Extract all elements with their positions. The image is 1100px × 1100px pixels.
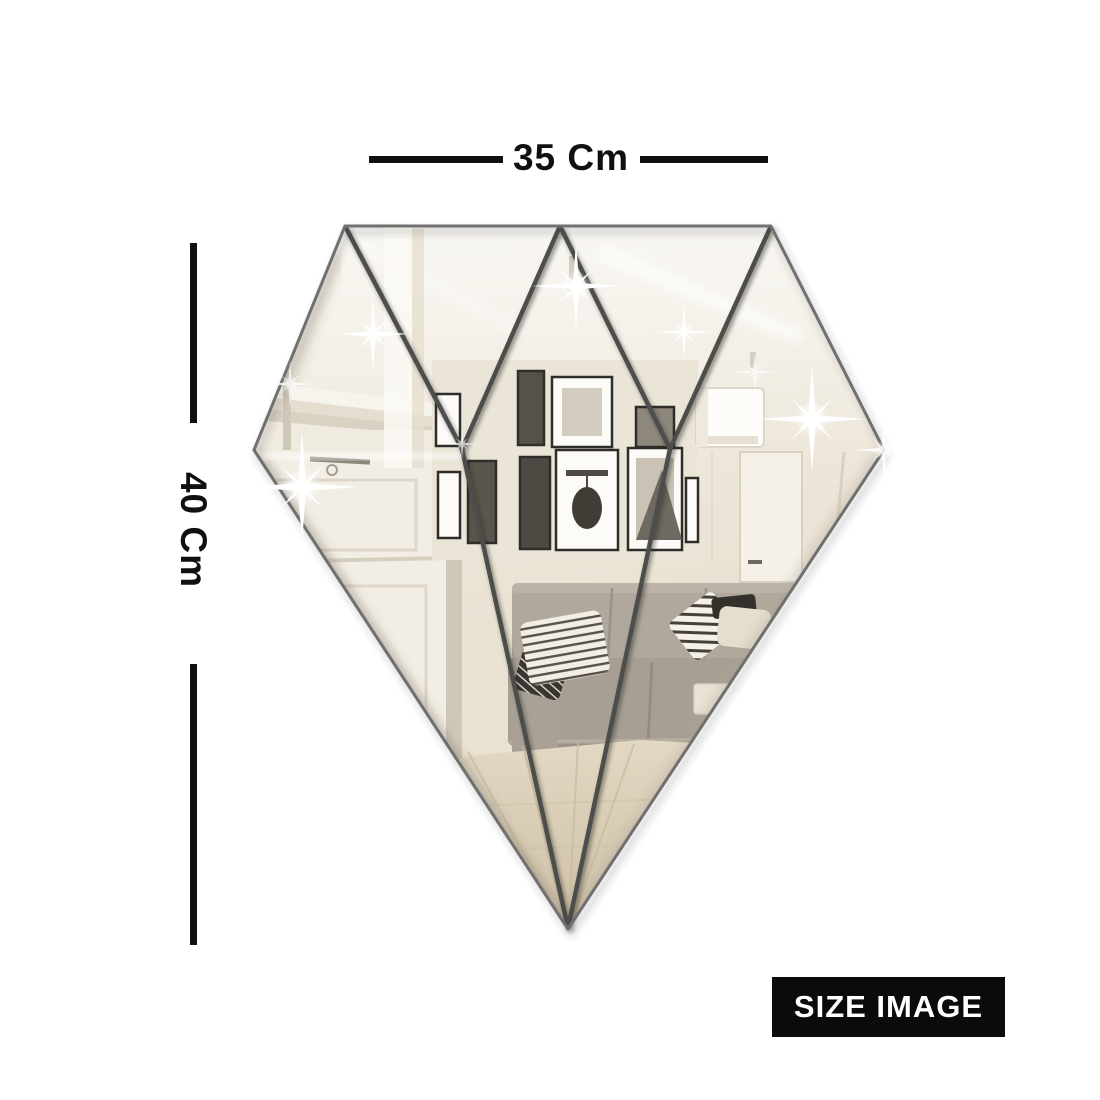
mirror-reflection-scene bbox=[220, 215, 910, 945]
floor bbox=[254, 740, 884, 934]
size-image-badge: SIZE IMAGE bbox=[772, 977, 1005, 1037]
diamond-mirror-graphic bbox=[0, 0, 1100, 1100]
air-conditioner bbox=[696, 388, 764, 447]
gallery-frames bbox=[432, 360, 698, 560]
product-size-image: 35 Cm 40 Cm bbox=[0, 0, 1100, 1100]
